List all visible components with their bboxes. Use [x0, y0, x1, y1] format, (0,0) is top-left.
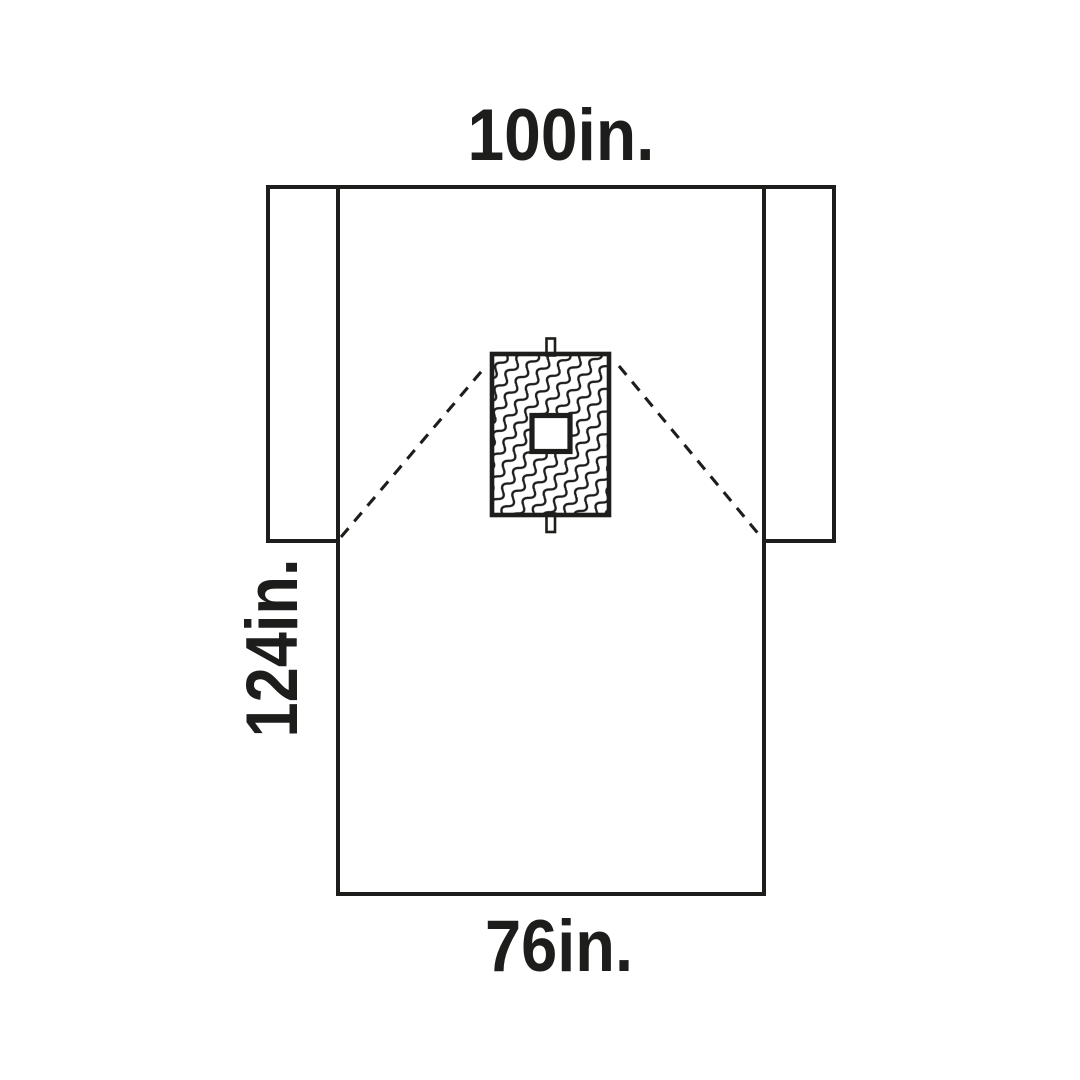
right-flap — [764, 187, 834, 541]
fenestration-opening — [532, 416, 570, 452]
surgical-drape-diagram: 100in. 124in. 76in. — [0, 0, 1080, 1080]
left-fold-guide-line — [341, 366, 486, 537]
side-length-label: 124in. — [232, 559, 313, 738]
drape-body — [338, 187, 764, 894]
right-fold-guide-line — [619, 366, 761, 537]
top-width-label: 100in. — [468, 95, 655, 176]
bottom-width-label: 76in. — [485, 906, 633, 987]
drape-diagram-canvas: 100in. 124in. 76in. — [0, 0, 1080, 1080]
left-flap — [268, 187, 338, 541]
